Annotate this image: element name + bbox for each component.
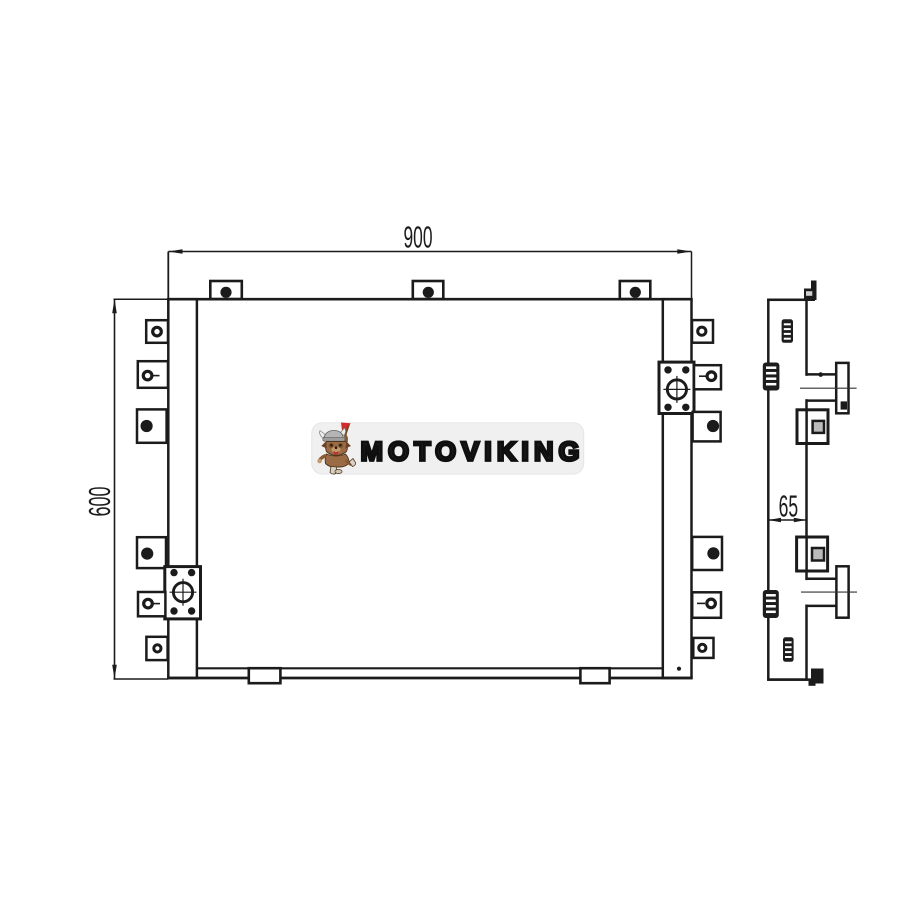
svg-text:65: 65 — [779, 489, 799, 524]
svg-text:900: 900 — [404, 220, 433, 255]
svg-text:600: 600 — [82, 487, 117, 517]
svg-text:MOTOVIKING: MOTOVIKING — [361, 436, 580, 466]
